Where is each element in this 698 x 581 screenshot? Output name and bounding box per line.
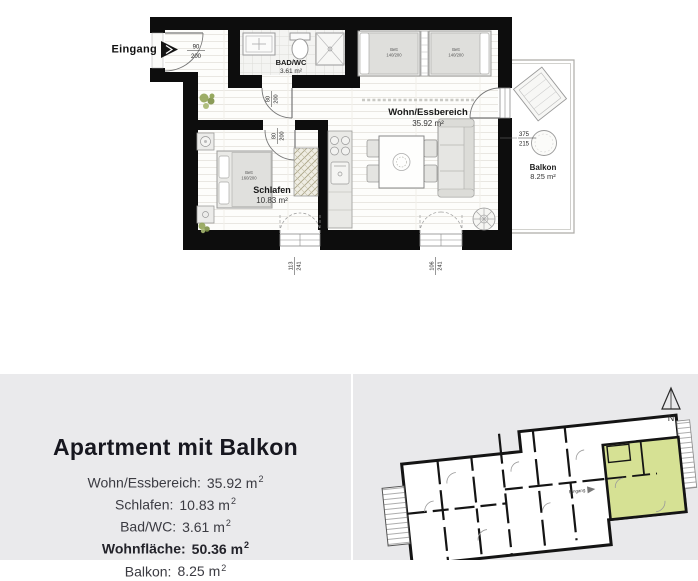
area-rows: Wohn/Essbereich:35.92 m2 Schlafen:10.83 … bbox=[0, 470, 351, 581]
wohn-area: 35.92 m² bbox=[412, 119, 444, 128]
svg-text:375: 375 bbox=[519, 132, 530, 138]
guest-bed-1: Bett 140/200 bbox=[358, 31, 420, 76]
lounge-chair bbox=[514, 67, 567, 121]
svg-text:80: 80 bbox=[272, 133, 278, 139]
kitchen-counter bbox=[328, 131, 352, 228]
schlafen-name: Schlafen bbox=[253, 185, 291, 195]
bottom-section: Apartment mit Balkon Wohn/Essbereich:35.… bbox=[0, 372, 698, 560]
bed-size: 140/200 bbox=[386, 53, 402, 58]
schlafen-area: 10.83 m² bbox=[256, 196, 288, 205]
wohn-name: Wohn/Essbereich bbox=[388, 107, 468, 118]
svg-text:241: 241 bbox=[297, 261, 303, 270]
floor-plan-svg: Bett 140/200 Bett 140/200 bbox=[0, 0, 698, 372]
svg-text:90: 90 bbox=[193, 45, 200, 51]
bed-label: Bett bbox=[452, 47, 460, 52]
bed-label: Bett bbox=[245, 170, 253, 175]
area-row-balkon: Balkon:8.25 m2 bbox=[0, 559, 351, 581]
svg-text:80: 80 bbox=[266, 96, 272, 102]
bad-wc-name: BAD/WC bbox=[276, 58, 307, 67]
entrance-label: Eingang bbox=[112, 44, 158, 56]
svg-text:241: 241 bbox=[438, 261, 444, 270]
bed-size: 140/200 bbox=[448, 53, 464, 58]
apartment-title: Apartment mit Balkon bbox=[0, 434, 351, 460]
area-row-bad: Bad/WC:3.61 m2 bbox=[0, 514, 351, 536]
dim-window-left: 113 241 bbox=[289, 257, 303, 275]
shower bbox=[316, 33, 344, 65]
bed-size: 160/200 bbox=[241, 176, 257, 181]
area-row-wohnflaeche: Wohnfläche:50.36 m2 bbox=[0, 536, 351, 558]
balcony-table bbox=[532, 131, 557, 156]
balkon-area: 8.25 m² bbox=[530, 172, 556, 181]
svg-text:215: 215 bbox=[519, 142, 530, 148]
guest-bed-2: Bett 140/200 bbox=[429, 31, 491, 76]
svg-text:200: 200 bbox=[191, 54, 202, 60]
washbasin bbox=[243, 33, 275, 55]
north-label: N bbox=[668, 413, 675, 423]
bed-label: Bett bbox=[390, 47, 398, 52]
svg-text:113: 113 bbox=[289, 262, 295, 271]
nightstand-1 bbox=[197, 133, 214, 150]
overview-panel: Eingang N bbox=[353, 374, 698, 560]
site-building: Eingang bbox=[378, 414, 698, 560]
bad-wc-area: 3.61 m² bbox=[280, 68, 303, 75]
floor-plan-section: Bett 140/200 Bett 140/200 bbox=[0, 0, 698, 372]
nightstand-2 bbox=[197, 206, 214, 223]
bed-divider-shelf bbox=[421, 31, 428, 76]
svg-text:200: 200 bbox=[274, 94, 280, 103]
svg-text:106: 106 bbox=[430, 261, 436, 270]
area-row-wohn: Wohn/Essbereich:35.92 m2 bbox=[0, 470, 351, 492]
highlighted-unit bbox=[603, 437, 686, 520]
svg-text:200: 200 bbox=[280, 131, 286, 140]
dim-window-right: 106 241 bbox=[430, 257, 444, 275]
area-row-schlafen: Schlafen:10.83 m2 bbox=[0, 492, 351, 514]
site-plan-svg: Eingang N bbox=[353, 374, 698, 560]
wardrobe bbox=[294, 148, 318, 196]
balkon-name: Balkon bbox=[530, 163, 557, 172]
sofa bbox=[438, 119, 474, 197]
info-panel: Apartment mit Balkon Wohn/Essbereich:35.… bbox=[0, 374, 351, 560]
floor-plant-large bbox=[473, 208, 495, 230]
